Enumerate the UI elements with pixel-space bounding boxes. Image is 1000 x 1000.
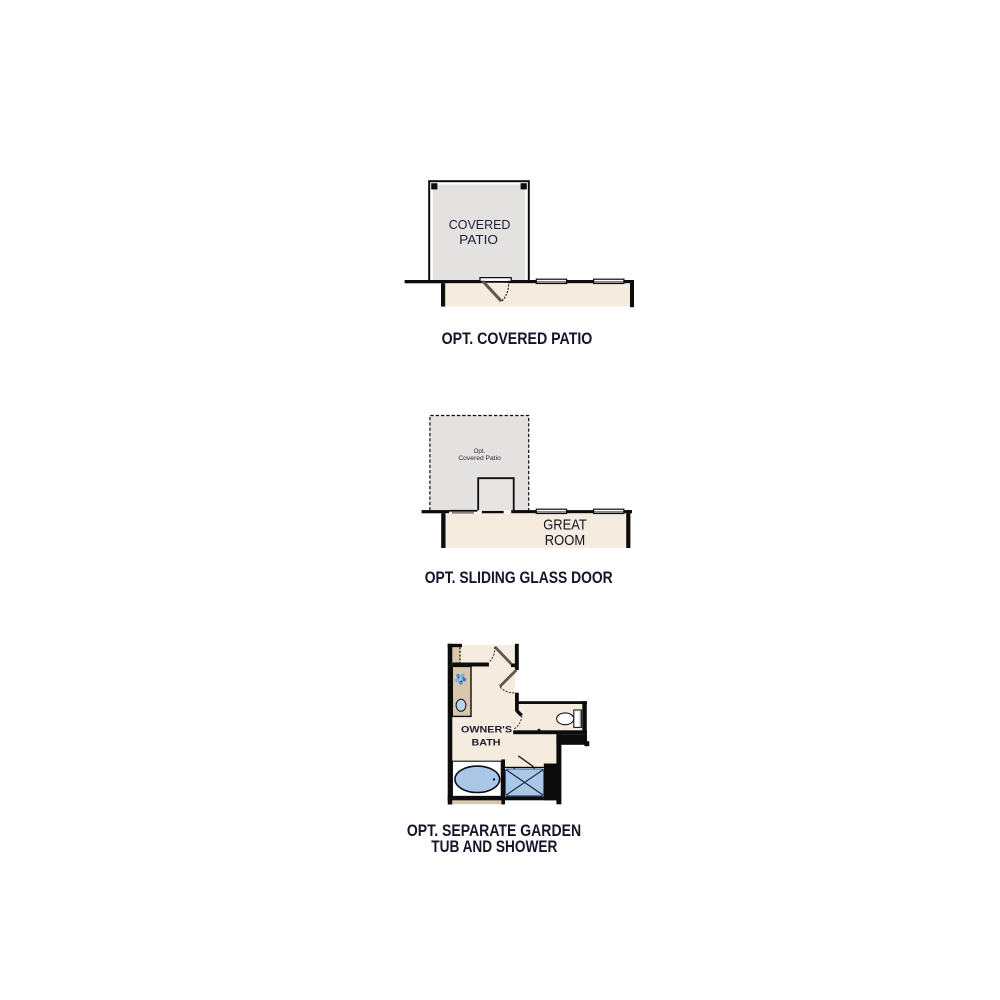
svg-text:GREAT: GREAT (543, 518, 587, 534)
svg-text:OPT. COVERED PATIO: OPT. COVERED PATIO (442, 329, 593, 348)
svg-text:Covered Patio: Covered Patio (458, 455, 501, 462)
svg-text:TUB AND SHOWER: TUB AND SHOWER (431, 837, 557, 856)
svg-text:PATIO: PATIO (459, 232, 498, 247)
svg-text:COVERED: COVERED (449, 217, 511, 232)
svg-text:OPT. SLIDING GLASS DOOR: OPT. SLIDING GLASS DOOR (425, 568, 613, 587)
svg-text:BATH: BATH (472, 738, 501, 748)
svg-text:ROOM: ROOM (545, 533, 585, 549)
svg-text:OWNER'S: OWNER'S (461, 724, 512, 734)
